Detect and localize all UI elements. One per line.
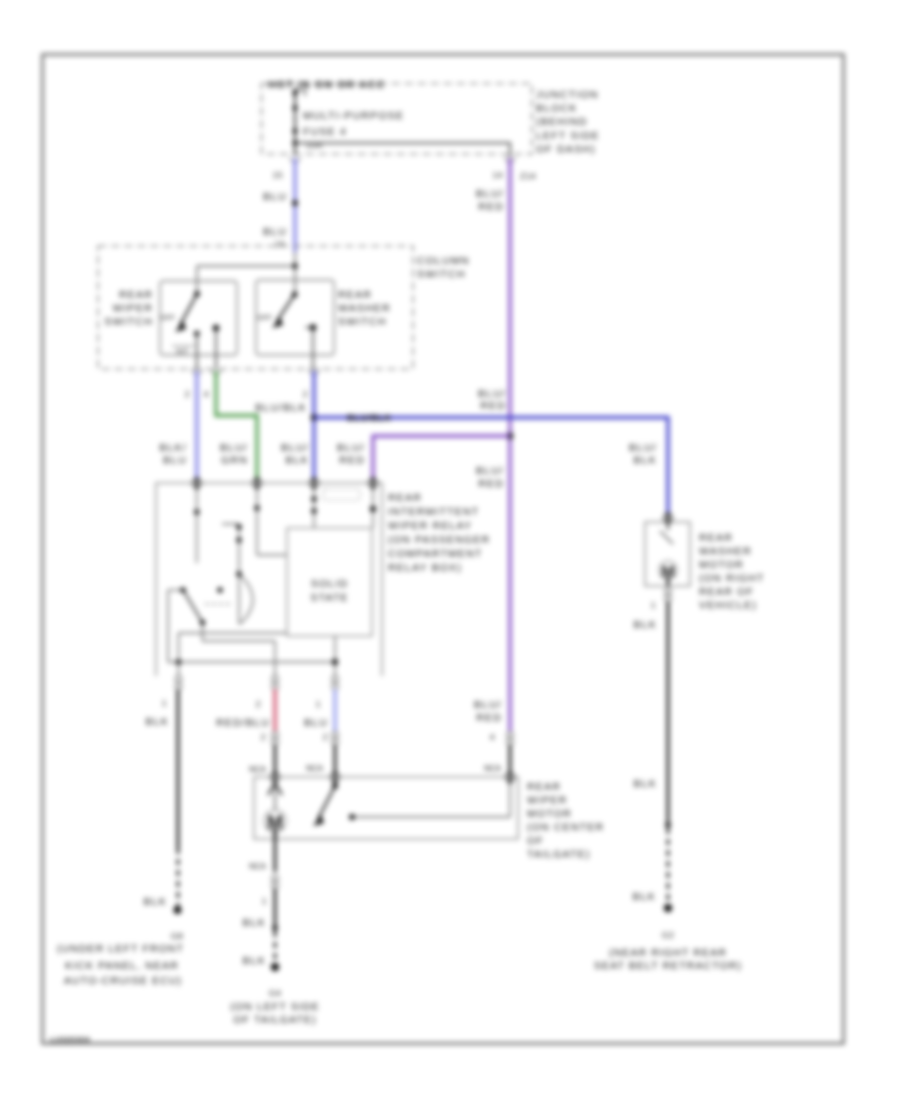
svg-text:WASHER: WASHER (338, 303, 391, 315)
svg-text:BLK: BLK (146, 716, 169, 728)
svg-text:4: 4 (490, 732, 495, 742)
svg-text:G4: G4 (269, 988, 281, 998)
svg-text:OFF: OFF (257, 313, 272, 322)
svg-text:WIPER: WIPER (113, 303, 153, 315)
svg-text:BLK: BLK (634, 455, 657, 467)
svg-text:BLU/: BLU/ (220, 442, 248, 454)
svg-text:RED/BLU: RED/BLU (216, 717, 270, 729)
svg-text:HOT IN ON OR ACC: HOT IN ON OR ACC (268, 79, 385, 91)
svg-text:1: 1 (651, 600, 656, 610)
svg-text:Z14: Z14 (520, 171, 536, 181)
svg-text:2: 2 (323, 732, 328, 742)
svg-text:REAR: REAR (527, 781, 561, 793)
svg-text:COMPARTMENT: COMPARTMENT (388, 548, 482, 560)
svg-text:BLU/: BLU/ (476, 188, 504, 200)
svg-text:BLK: BLK (286, 455, 309, 467)
svg-text:OF TAILGATE): OF TAILGATE) (233, 1014, 316, 1026)
svg-text:BLU/: BLU/ (281, 442, 309, 454)
svg-text:2: 2 (261, 732, 266, 742)
svg-text:WASHER: WASHER (699, 546, 752, 558)
svg-text:REAR: REAR (388, 492, 422, 504)
svg-text:REAR OF: REAR OF (699, 586, 754, 598)
svg-text:WIPER: WIPER (527, 795, 567, 807)
svg-text:RELAY BOX): RELAY BOX) (388, 562, 462, 574)
svg-text:REAR: REAR (119, 289, 153, 301)
svg-text:4: 4 (204, 389, 209, 399)
svg-text:1: 1 (316, 699, 321, 709)
svg-text:(ON PASSENGER: (ON PASSENGER (388, 534, 490, 546)
svg-text:REAR: REAR (338, 289, 372, 301)
svg-text:NCA: NCA (249, 765, 267, 774)
svg-text:TAILGATE): TAILGATE) (527, 849, 591, 861)
svg-text:BLU/: BLU/ (478, 388, 506, 400)
svg-text:(BEHIND: (BEHIND (536, 116, 588, 128)
svg-text:14: 14 (493, 170, 503, 180)
svg-text:BLU: BLU (263, 191, 287, 203)
svg-text:1: 1 (262, 896, 267, 906)
svg-text:INTERMITTENT: INTERMITTENT (388, 506, 479, 518)
svg-text:(NEAR RIGHT REAR: (NEAR RIGHT REAR (609, 947, 727, 959)
svg-text:BLK/: BLK/ (159, 442, 187, 454)
svg-text:INT: INT (176, 347, 189, 356)
svg-text:RED: RED (478, 201, 504, 213)
svg-text:SEAT BELT RETRACTOR): SEAT BELT RETRACTOR) (594, 960, 742, 972)
svg-text:RED: RED (476, 712, 502, 724)
svg-text:G2: G2 (662, 930, 674, 940)
svg-text:SWITCH: SWITCH (104, 316, 153, 328)
svg-text:BLK: BLK (243, 955, 266, 967)
svg-text:BLU: BLU (263, 226, 287, 238)
svg-text:BLK: BLK (243, 917, 266, 929)
svg-text:MOTOR: MOTOR (699, 559, 744, 571)
svg-text:BLU/: BLU/ (337, 442, 365, 454)
svg-text:BLU/: BLU/ (474, 699, 502, 711)
svg-text:MULTI-PURPOSE: MULTI-PURPOSE (303, 110, 404, 122)
svg-text:RED: RED (478, 478, 504, 490)
svg-text:NCA: NCA (306, 764, 324, 773)
svg-text:SOLID: SOLID (311, 578, 349, 590)
svg-text:RED: RED (480, 400, 506, 412)
svg-text:2: 2 (256, 699, 261, 709)
svg-text:(UNDER LEFT FRONT: (UNDER LEFT FRONT (57, 943, 184, 955)
svg-text:BLU: BLU (163, 455, 187, 467)
svg-text:2: 2 (185, 389, 190, 399)
svg-text:SWITCH: SWITCH (338, 316, 387, 328)
svg-text:(ON CENTER: (ON CENTER (527, 822, 604, 834)
svg-text:MOTOR: MOTOR (527, 808, 572, 820)
svg-text:BLU/BLK: BLU/BLK (347, 413, 392, 424)
svg-text:BLU/: BLU/ (629, 442, 657, 454)
svg-text:RED: RED (339, 455, 365, 467)
svg-text:OF: OF (527, 835, 544, 847)
svg-text:10A: 10A (306, 140, 323, 150)
svg-text:BLK: BLK (144, 896, 167, 908)
svg-text:BLK: BLK (634, 619, 657, 631)
svg-text:1: 1 (162, 698, 167, 708)
svg-text:BLU: BLU (304, 717, 328, 729)
svg-text:WIPER RELAY: WIPER RELAY (388, 520, 472, 532)
svg-text:JUNCTION: JUNCTION (536, 89, 599, 101)
svg-text:OF DASH): OF DASH) (536, 143, 596, 155)
svg-text:COLUMN: COLUMN (417, 255, 470, 267)
svg-text:BLK: BLK (633, 891, 656, 903)
svg-text:2: 2 (303, 389, 308, 399)
svg-text:G8: G8 (171, 931, 183, 941)
svg-text:NCA: NCA (249, 862, 267, 871)
svg-text:FUSE 4: FUSE 4 (303, 126, 347, 138)
svg-text:AUTO-CRUISE ECU): AUTO-CRUISE ECU) (64, 975, 182, 987)
svg-text:(ON LEFT SIDE: (ON LEFT SIDE (230, 1001, 319, 1013)
svg-text:BLU/: BLU/ (476, 465, 504, 477)
svg-text:15: 15 (273, 170, 283, 180)
svg-text:KICK PANEL, NEAR: KICK PANEL, NEAR (65, 960, 179, 972)
svg-text:16: 16 (275, 239, 285, 249)
svg-text:BLU/BLK: BLU/BLK (255, 402, 307, 414)
svg-text:(ON RIGHT: (ON RIGHT (699, 573, 765, 585)
svg-text:SWITCH: SWITCH (417, 269, 466, 281)
svg-text:STATE: STATE (310, 592, 348, 604)
svg-text:BLK: BLK (634, 778, 657, 790)
svg-text:VEHICLE): VEHICLE) (699, 600, 757, 612)
svg-text:NCA: NCA (484, 764, 502, 773)
svg-text:REAR: REAR (699, 532, 733, 544)
svg-text:GRN: GRN (221, 455, 248, 467)
svg-text:LEFT SIDE: LEFT SIDE (536, 130, 600, 142)
svg-text:L1O2O3O4: L1O2O3O4 (50, 1037, 90, 1044)
svg-text:BLOCK: BLOCK (536, 103, 578, 115)
svg-text:OFF: OFF (160, 313, 175, 322)
